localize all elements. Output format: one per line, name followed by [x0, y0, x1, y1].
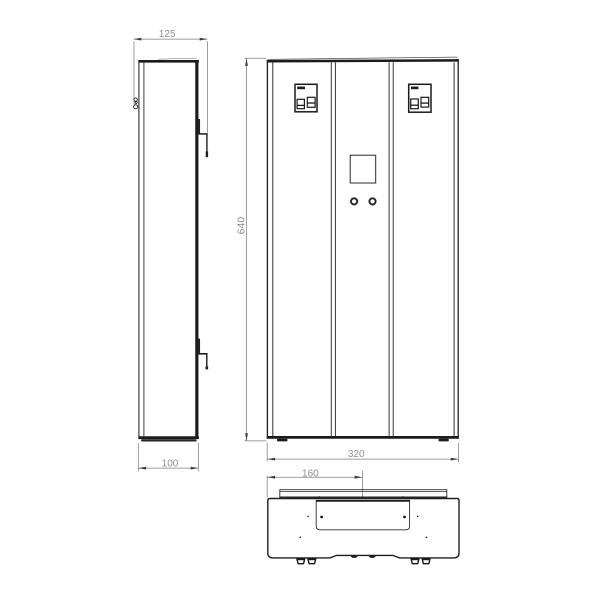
- svg-text:320: 320: [348, 449, 365, 460]
- svg-text:640: 640: [235, 217, 247, 235]
- svg-text:100: 100: [162, 459, 179, 470]
- svg-text:160: 160: [302, 468, 319, 479]
- svg-text:125: 125: [159, 29, 176, 40]
